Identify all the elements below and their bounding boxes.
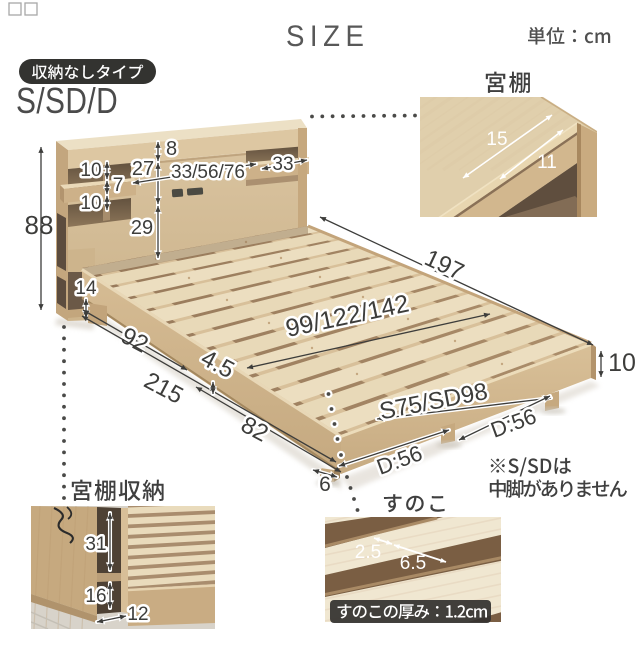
svg-text:2.5: 2.5	[355, 542, 381, 563]
svg-text:11: 11	[537, 152, 557, 173]
svg-text:27: 27	[132, 158, 154, 180]
svg-text:7: 7	[113, 175, 124, 196]
svg-text:14: 14	[75, 278, 97, 299]
svg-text:31: 31	[85, 534, 106, 555]
svg-text:12: 12	[127, 604, 148, 625]
svg-text:33/56/76: 33/56/76	[171, 162, 245, 183]
svg-text:10: 10	[80, 193, 101, 214]
svg-text:8: 8	[166, 138, 177, 160]
svg-text:16: 16	[85, 586, 106, 607]
svg-text:S/SD/D: S/SD/D	[16, 81, 118, 121]
svg-text:6.5: 6.5	[400, 553, 426, 574]
svg-text:88: 88	[25, 210, 54, 240]
svg-text:29: 29	[131, 217, 153, 239]
svg-text:10: 10	[608, 349, 636, 377]
svg-text:6: 6	[319, 473, 331, 496]
svg-text:33: 33	[272, 154, 293, 175]
svg-text:10: 10	[80, 160, 101, 181]
svg-text:15: 15	[486, 129, 507, 150]
svg-text:SIZE: SIZE	[286, 20, 369, 53]
